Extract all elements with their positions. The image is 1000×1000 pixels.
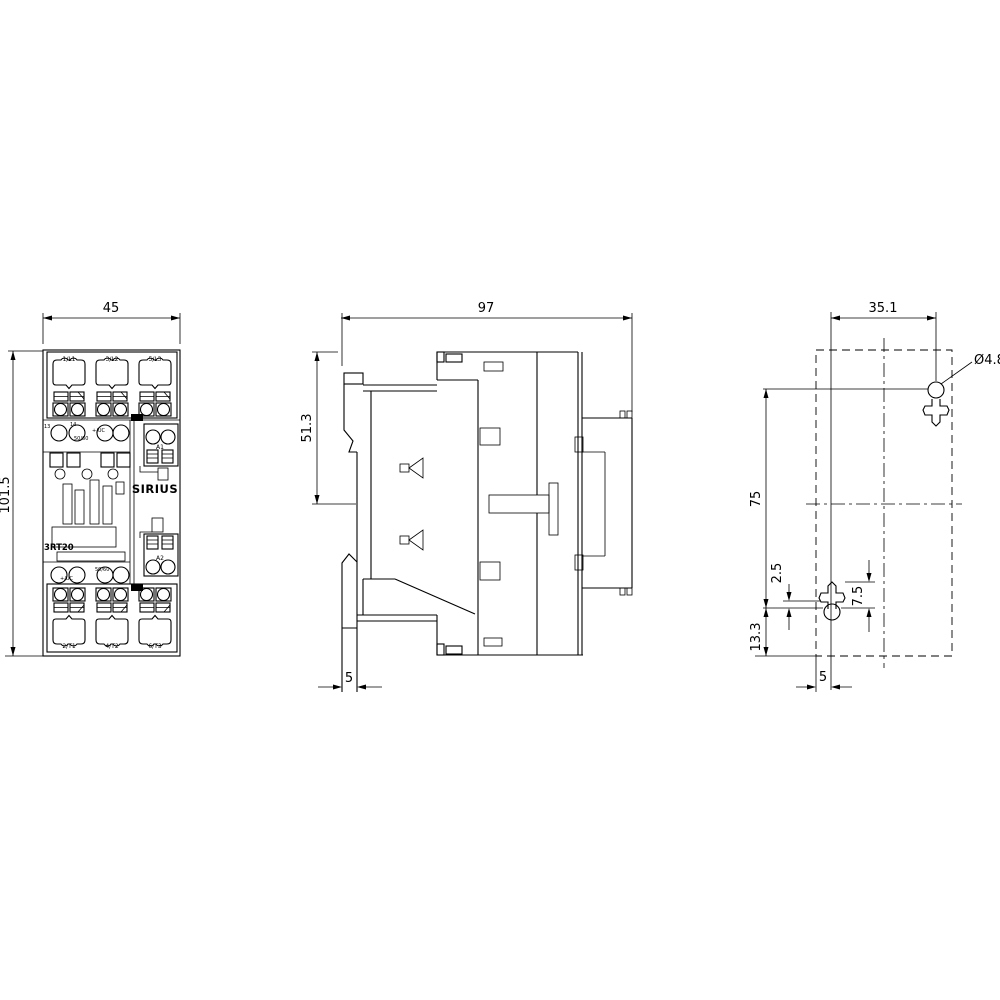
terminal-label-6T3: 6/T3 [148,643,162,650]
bottom-keyhole [819,582,845,620]
drill-spacing-v-dimension: 75 [749,389,769,608]
contactor-dimension-drawing: 45 101.5 1/L1 3/L2 5/L3 [0,0,1000,1000]
side-inner-detail [400,362,632,646]
drill-bottom-offset-dimension: 13.3 [749,608,816,656]
drill-keyhole-offset-dimension: 7.5 [845,560,875,632]
front-height-dimension: 101.5 [0,351,43,656]
aux-mark-14: 14 [70,422,76,428]
hole-diameter-label: Ø4.8 [974,353,1000,368]
hole-diameter-callout: Ø4.8 [941,353,1000,384]
drill-small-offset-dimension: 2.5 [770,563,820,630]
drill-plate-outline [763,312,962,690]
front-width-dimension: 45 [43,301,180,344]
coil-terminal-a1: A1 [156,444,164,451]
drill-pattern-view: 35.1 Ø4.8 75 13.3 2.5 [749,301,1000,692]
side-depth-label: 97 [478,301,495,316]
coil-mark-uc-top: +/UC [92,428,106,434]
side-foot-dimension: 5 [318,671,382,690]
front-view: 45 101.5 1/L1 3/L2 5/L3 [0,301,180,656]
drill-spacing-h-label: 35.1 [869,301,898,316]
front-bottom-terminal-block: 2/T1 4/T2 6/T3 [53,588,171,650]
front-height-label: 101.5 [0,476,13,513]
drill-spacing-h-dimension: 35.1 [831,301,936,321]
terminal-label-3L2: 3/L2 [106,356,119,363]
terminal-label-4T2: 4/T2 [105,643,119,650]
aux-mark-13: 13 [44,424,50,430]
front-mechanism-detail: 3RT20 [44,469,125,561]
terminal-label-2T1: 2/T1 [62,643,76,650]
model-label: 3RT20 [44,543,74,553]
drill-small-offset-label: 2.5 [770,563,785,584]
side-upper-label: 51.3 [300,414,315,443]
side-view: 97 51.3 5 [300,301,632,692]
drill-edge-offset-dimension: 5 [796,656,852,692]
side-profile-outline [342,352,632,692]
coil-mark-uc-bottom: +/UC [60,576,74,582]
front-width-label: 45 [103,301,120,316]
side-depth-dimension: 97 [341,301,632,412]
coil-mark-hz-top: 50/60 [74,436,88,442]
coil-mark-hz-bottom: 50/60 [95,567,109,573]
terminal-label-5L3: 5/L3 [149,356,162,363]
side-foot-label: 5 [345,671,353,686]
dimension-drawing-canvas: 45 101.5 1/L1 3/L2 5/L3 [0,0,1000,1000]
drill-bottom-offset-label: 13.3 [749,623,764,652]
front-coil-terminals: A1 SIRIUS A2 [132,424,178,576]
drill-keyhole-offset-label: 7.5 [851,586,866,607]
brand-label: SIRIUS [132,482,178,496]
terminal-label-1L1: 1/L1 [63,356,76,363]
drill-spacing-v-label: 75 [749,491,764,508]
drill-edge-offset-label: 5 [819,670,827,685]
side-upper-dimension: 51.3 [300,352,356,504]
front-top-terminal-block: 1/L1 3/L2 5/L3 [53,356,171,416]
